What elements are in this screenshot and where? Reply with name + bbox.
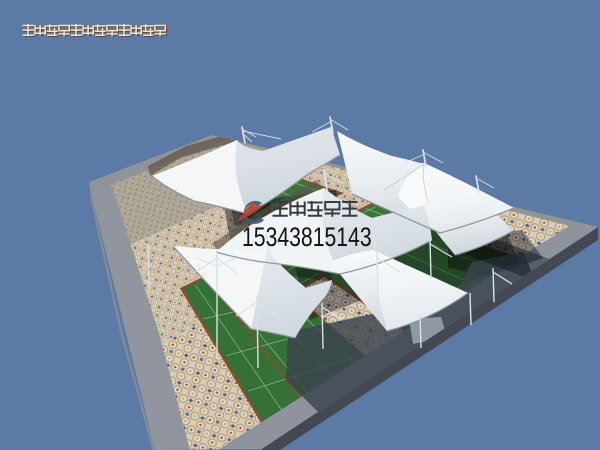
svg-text:15343815143: 15343815143 [242,223,372,253]
